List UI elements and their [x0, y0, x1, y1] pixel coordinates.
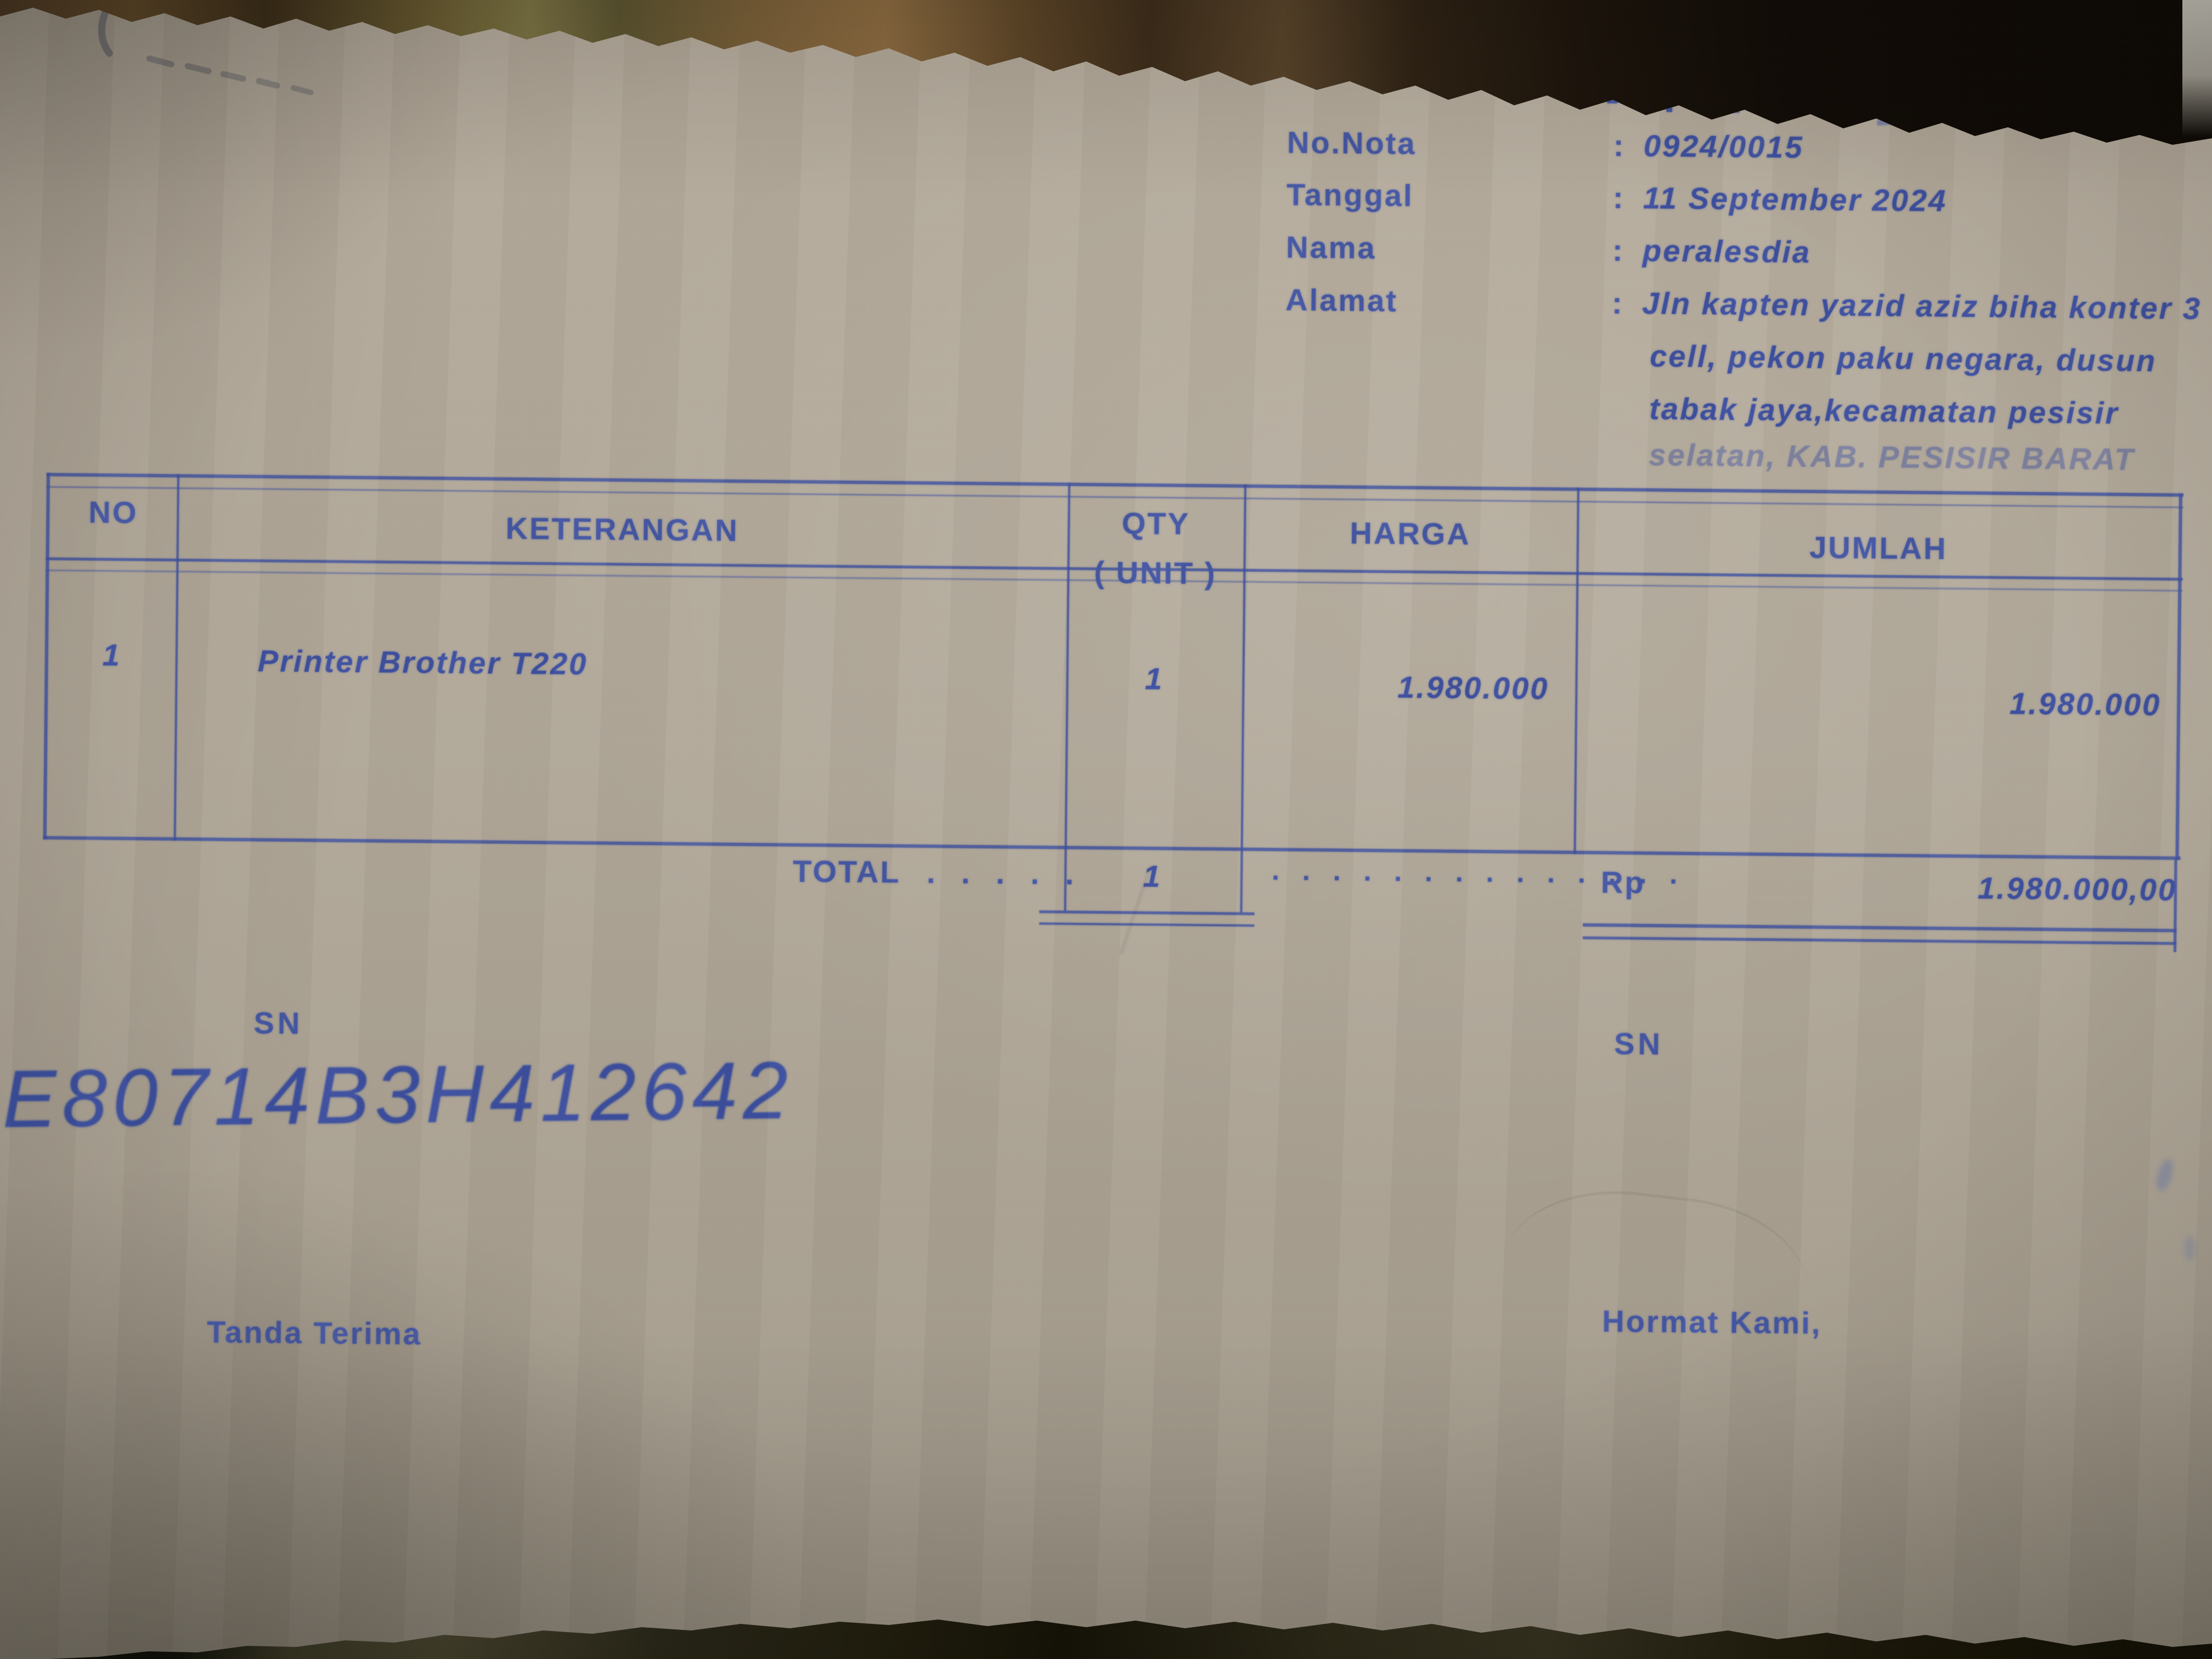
- tanggal-value: 11 September 2024: [1643, 180, 1948, 218]
- row-jumlah: 1.980.000: [1575, 681, 2179, 723]
- tanggal-label: Tanggal: [1286, 177, 1414, 213]
- tanda-terima-label: Tanda Terima: [207, 1314, 422, 1352]
- row-harga: 1.980.000: [1242, 668, 1576, 707]
- header-cell-no: NO: [46, 494, 180, 531]
- nama-value: peralesdia: [1643, 233, 1812, 270]
- header-cell-jumlah: JUMLAH: [1577, 527, 2181, 569]
- sn-right-label: SN: [1614, 1025, 1663, 1062]
- alamat-line-2: cell, pekon paku negara, dusun: [1650, 338, 2157, 379]
- faint-crease-arc: [1493, 1178, 1817, 1379]
- table-right-border-extension: [2174, 860, 2177, 952]
- header-cell-qty: QTY: [1068, 505, 1244, 542]
- header-cell-keterangan: KETERANGAN: [177, 507, 1068, 551]
- total-qty-value: 1: [1064, 857, 1241, 895]
- total-amount-underline-2: [1583, 936, 2176, 945]
- ink-smudge-right-edge-2: [2184, 1235, 2195, 1261]
- header-cell-qty-unit: ( UNIT ): [1067, 554, 1244, 591]
- faint-scribble-mark: [25, 0, 334, 112]
- row-keterangan: Printer Brother T220: [257, 643, 588, 682]
- invoice-title: -- F A K T U R --: [1605, 74, 2015, 125]
- alamat-line-4: selatan, KAB. PESISIR BARAT: [1649, 437, 2135, 477]
- invoice-paper: -- F A K T U R -- No.Nota : 0924/0015 Ta…: [0, 0, 2212, 1659]
- alamat-line-3: tabak jaya,kecamatan pesisir: [1649, 391, 2119, 431]
- total-label-text: TOTAL: [793, 854, 900, 889]
- nama-label: Nama: [1286, 229, 1376, 266]
- total-qty-underline-2: [1039, 922, 1254, 927]
- invoice-content: -- F A K T U R -- No.Nota : 0924/0015 Ta…: [0, 0, 2212, 1659]
- handwritten-serial-number: E80714B3H412642: [2, 1044, 794, 1146]
- alamat-line-1: Jln kapten yazid aziz biha konter 3: [1642, 285, 2202, 326]
- table-bottom-border: [43, 836, 2181, 860]
- no-nota-label: No.Nota: [1287, 125, 1417, 161]
- no-nota-colon: :: [1613, 127, 1626, 163]
- photo-of-invoice: -- F A K T U R -- No.Nota : 0924/0015 Ta…: [0, 0, 2212, 1659]
- table-top-border: [47, 473, 2183, 496]
- row-no: 1: [45, 636, 179, 673]
- nama-colon: :: [1612, 232, 1624, 268]
- header-cell-harga: HARGA: [1244, 514, 1577, 553]
- tanggal-colon: :: [1613, 179, 1625, 215]
- row-qty: 1: [1066, 660, 1243, 697]
- total-label: TOTAL . . . . .: [793, 853, 1083, 891]
- no-nota-value: 0924/0015: [1644, 128, 1804, 165]
- background-object-edge: [2182, 0, 2212, 137]
- ink-smudge-right-edge-1: [2153, 1158, 2176, 1193]
- alamat-label: Alamat: [1285, 282, 1398, 319]
- sn-left-label: SN: [253, 1005, 303, 1041]
- total-label-dots: . . . . .: [927, 855, 1083, 891]
- total-qty-underline-1: [1039, 910, 1254, 915]
- total-amount-underline-1: [1583, 923, 2176, 932]
- stray-ink-dash: [1877, 118, 1910, 126]
- total-amount: 1.980.000,00: [1798, 868, 2177, 908]
- total-currency: Rp: [1601, 864, 1645, 900]
- alamat-colon: :: [1612, 285, 1624, 320]
